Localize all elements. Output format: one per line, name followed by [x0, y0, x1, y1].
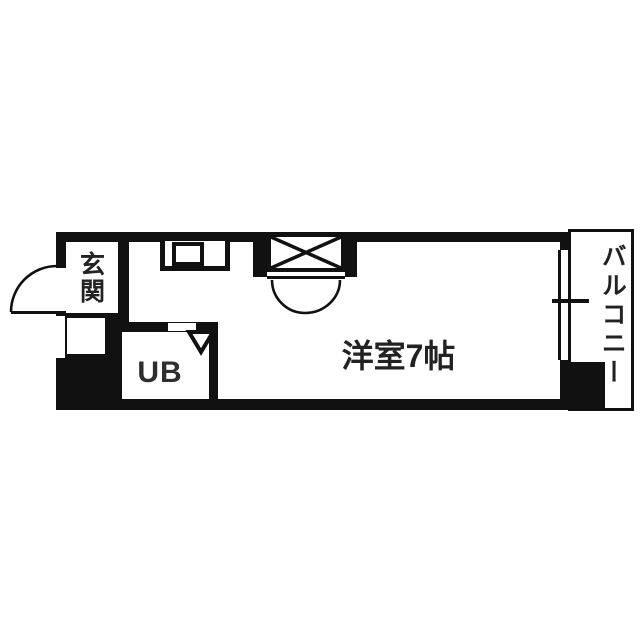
entrance-door-opening [50, 268, 66, 313]
entrance-door-leaf [11, 311, 66, 314]
entrance-label: 玄関 [76, 251, 104, 305]
closet-rail [267, 276, 345, 279]
closet-x-symbol-icon [267, 233, 345, 272]
entrance-alcove-box [65, 316, 107, 356]
window-center-tick [552, 299, 589, 303]
unit-bath-label: UB [130, 356, 190, 390]
kitchen-sink-inner [172, 242, 204, 266]
bath-door-opening [168, 323, 196, 331]
sliding-window-symbol-icon [558, 250, 571, 360]
main-room-label: 洋室7帖 [316, 331, 481, 377]
balcony-label: バルコニー [599, 243, 625, 388]
floorplan-canvas: 玄関 UB 洋室7帖 バルコニー [0, 0, 640, 640]
outline-notch [50, 316, 65, 358]
closet-wall-stub-right [345, 232, 357, 277]
closet-wall-stub-left [253, 232, 267, 277]
